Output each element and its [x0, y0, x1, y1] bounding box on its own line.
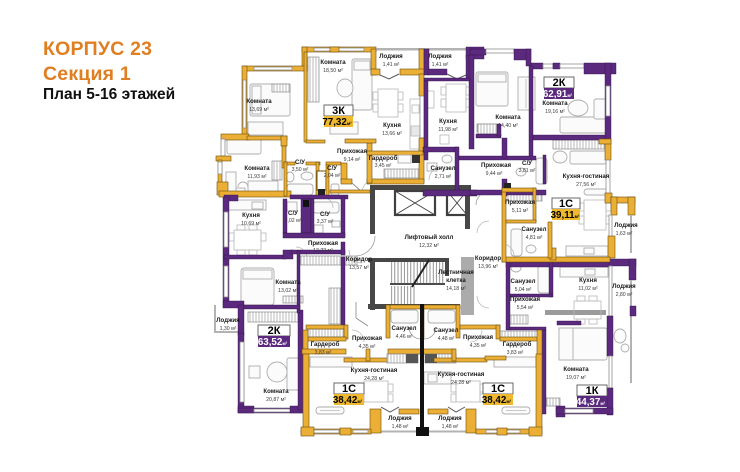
svg-text:3,81 м²: 3,81 м²: [519, 168, 536, 174]
svg-text:27,56 м²: 27,56 м²: [576, 182, 596, 188]
svg-text:Лоджия: Лоджия: [428, 53, 452, 60]
svg-text:13,66 м²: 13,66 м²: [382, 131, 402, 137]
svg-text:13,02 м²: 13,02 м²: [278, 288, 298, 294]
svg-text:20,87 м²: 20,87 м²: [266, 397, 286, 403]
svg-text:С/У: С/У: [288, 210, 298, 217]
svg-text:4,35 м²: 4,35 м²: [359, 344, 376, 350]
svg-text:18,50 м²: 18,50 м²: [323, 68, 343, 74]
svg-text:14,40 м²: 14,40 м²: [498, 123, 518, 129]
svg-text:Лоджия: Лоджия: [614, 222, 638, 229]
svg-text:Лоджия: Лоджия: [612, 283, 636, 290]
svg-text:Лифтовый холл: Лифтовый холл: [405, 234, 454, 241]
svg-text:4,46 м²: 4,46 м²: [396, 334, 413, 340]
svg-text:Кухня: Кухня: [242, 212, 260, 219]
svg-text:3,45 м²: 3,45 м²: [375, 163, 392, 169]
svg-text:10,69 м²: 10,69 м²: [241, 221, 261, 227]
svg-text:12,32 м²: 12,32 м²: [419, 243, 439, 249]
svg-text:4,81 м²: 4,81 м²: [526, 235, 543, 241]
svg-text:Комната: Комната: [320, 59, 346, 66]
svg-text:Коридор: Коридор: [475, 255, 502, 262]
svg-text:5,04 м²: 5,04 м²: [515, 287, 532, 293]
svg-text:3К: 3К: [332, 105, 345, 117]
svg-text:11,93 м²: 11,93 м²: [247, 174, 267, 180]
svg-text:Гардероб: Гардероб: [369, 155, 398, 162]
svg-text:Кухня: Кухня: [579, 277, 597, 284]
svg-text:Кухня-гостиная: Кухня-гостиная: [351, 367, 398, 374]
svg-text:2К: 2К: [268, 325, 281, 337]
svg-text:Кухня: Кухня: [439, 118, 457, 125]
svg-text:Гардероб: Гардероб: [503, 341, 532, 348]
svg-text:Кухня-гостиная: Кухня-гостиная: [438, 371, 485, 378]
svg-text:4,35 м²: 4,35 м²: [470, 343, 487, 349]
svg-text:Прихожая: Прихожая: [308, 240, 339, 247]
svg-text:Комната: Комната: [244, 165, 270, 172]
svg-text:Лоджия: Лоджия: [379, 53, 403, 60]
svg-text:13,96 м²: 13,96 м²: [478, 264, 498, 270]
svg-text:Комната: Комната: [263, 388, 289, 395]
svg-text:Комната: Комната: [542, 100, 568, 107]
svg-text:1,30 м²: 1,30 м²: [220, 326, 237, 332]
svg-text:1,48 м²: 1,48 м²: [442, 424, 459, 430]
svg-text:Прихожая: Прихожая: [337, 148, 368, 155]
svg-text:Санузел: Санузел: [510, 278, 535, 285]
svg-text:1С: 1С: [491, 383, 505, 395]
svg-text:Лоджия: Лоджия: [438, 415, 462, 422]
svg-text:9,14 м²: 9,14 м²: [344, 157, 361, 163]
svg-text:Лоджия: Лоджия: [216, 317, 240, 324]
svg-text:Прихожая: Прихожая: [463, 334, 494, 341]
svg-text:С/У: С/У: [327, 165, 337, 172]
svg-text:Прихожая: Прихожая: [505, 199, 536, 206]
svg-text:Санузел: Санузел: [430, 165, 455, 172]
svg-text:2,80 м²: 2,80 м²: [616, 292, 633, 298]
svg-text:1,41 м²: 1,41 м²: [383, 62, 400, 68]
svg-text:5,54 м²: 5,54 м²: [517, 305, 534, 311]
svg-text:Комната: Комната: [563, 366, 589, 373]
svg-text:Комната: Комната: [246, 98, 272, 105]
svg-text:3,83 м²: 3,83 м²: [315, 350, 332, 356]
svg-text:Прихожая: Прихожая: [352, 335, 383, 342]
svg-text:3,83 м²: 3,83 м²: [507, 350, 524, 356]
svg-text:Комната: Комната: [275, 279, 301, 286]
svg-text:2К: 2К: [553, 77, 566, 89]
svg-text:2,04 м²: 2,04 м²: [324, 173, 341, 179]
svg-text:12,22 м²: 12,22 м²: [313, 248, 333, 254]
svg-text:С/У: С/У: [320, 211, 330, 218]
svg-text:9,44 м²: 9,44 м²: [486, 171, 503, 177]
svg-text:5,11 м²: 5,11 м²: [512, 208, 529, 214]
svg-text:1С: 1С: [342, 383, 356, 395]
svg-text:24,28 м²: 24,28 м²: [451, 380, 471, 386]
svg-text:Гардероб: Гардероб: [311, 341, 340, 348]
svg-text:3,50 м²: 3,50 м²: [292, 167, 309, 173]
svg-text:14,18 м²: 14,18 м²: [446, 286, 466, 292]
svg-text:1С: 1С: [559, 198, 573, 210]
svg-text:Санузел: Санузел: [391, 325, 416, 332]
svg-text:Лоджия: Лоджия: [388, 415, 412, 422]
svg-text:Комната: Комната: [495, 114, 521, 121]
svg-text:Коридор: Коридор: [346, 256, 373, 263]
svg-text:С/У: С/У: [295, 159, 305, 166]
svg-text:3,37 м²: 3,37 м²: [317, 219, 334, 225]
svg-text:Кухня: Кухня: [383, 122, 401, 129]
svg-text:клетка: клетка: [446, 277, 466, 284]
svg-text:Прихожая: Прихожая: [510, 296, 541, 303]
svg-text:2,71 м²: 2,71 м²: [435, 174, 452, 180]
svg-text:1К: 1К: [586, 385, 599, 397]
svg-text:11,02 м²: 11,02 м²: [578, 286, 598, 292]
svg-text:11,98 м²: 11,98 м²: [438, 127, 458, 133]
svg-text:13,69 м²: 13,69 м²: [249, 107, 269, 113]
svg-text:Санузел: Санузел: [433, 327, 458, 334]
svg-text:Прихожая: Прихожая: [481, 162, 512, 169]
svg-text:19,07 м²: 19,07 м²: [566, 375, 586, 381]
svg-text:13,57 м²: 13,57 м²: [349, 265, 369, 271]
svg-text:2,02 м²: 2,02 м²: [285, 218, 302, 224]
svg-text:С/У: С/У: [522, 160, 532, 167]
svg-text:Лестничная: Лестничная: [438, 269, 474, 276]
svg-text:1,63 м²: 1,63 м²: [616, 231, 633, 237]
svg-text:1,41 м²: 1,41 м²: [432, 62, 449, 68]
svg-text:1,48 м²: 1,48 м²: [392, 424, 409, 430]
svg-text:Санузел: Санузел: [521, 226, 546, 233]
svg-text:19,16 м²: 19,16 м²: [545, 109, 565, 115]
svg-text:4,48 м²: 4,48 м²: [438, 336, 455, 342]
svg-text:24,28 м²: 24,28 м²: [364, 376, 384, 382]
svg-text:Кухня-гостиная: Кухня-гостиная: [563, 173, 610, 180]
